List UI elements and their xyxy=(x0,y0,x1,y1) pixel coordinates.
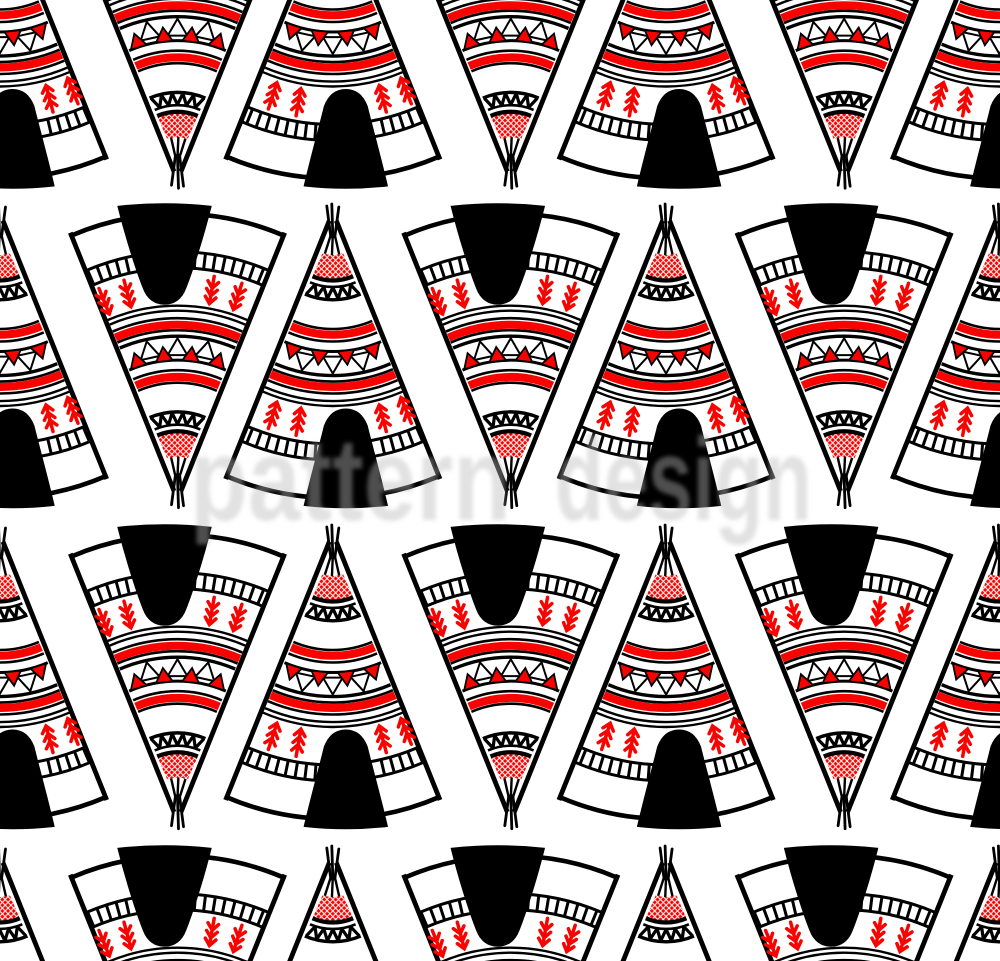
svg-text:pattern: pattern xyxy=(190,414,511,546)
svg-text:design: design xyxy=(555,414,812,546)
